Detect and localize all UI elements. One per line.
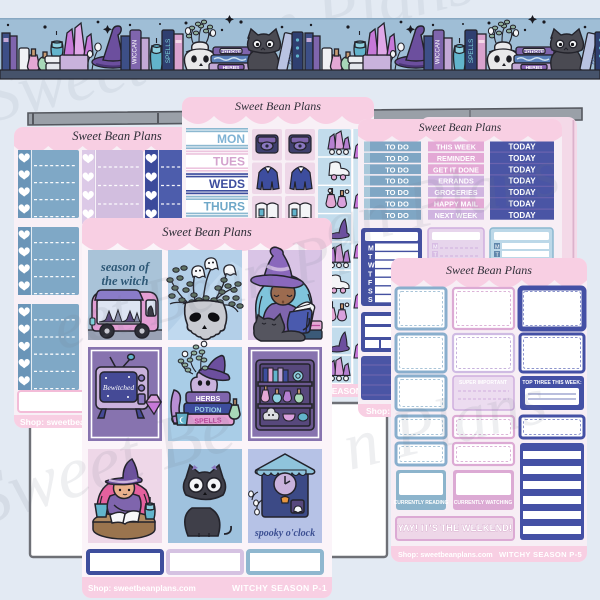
svg-text:TUES: TUES — [213, 154, 245, 168]
svg-text:Sweet Bean Plans: Sweet Bean Plans — [419, 122, 502, 134]
svg-text:Shop: sweetbeanplans.com: Shop: sweetbeanplans.com — [88, 584, 196, 593]
svg-text:Shop: sweetbeanplans.com: Shop: sweetbeanplans.com — [398, 550, 493, 559]
svg-text:Sweet Bean Plans: Sweet Bean Plans — [72, 129, 162, 143]
svg-text:Sweet Bean Plans: Sweet Bean Plans — [446, 263, 532, 277]
svg-text:Bewitched: Bewitched — [103, 383, 134, 392]
svg-text:M: M — [495, 245, 500, 251]
svg-text:W: W — [368, 263, 375, 270]
svg-text:THURS: THURS — [204, 200, 245, 214]
svg-text:spooky o'clock: spooky o'clock — [254, 528, 315, 539]
svg-text:WITCHY SEASON P-1: WITCHY SEASON P-1 — [232, 583, 327, 593]
svg-text:CURRENTLY WATCHING: CURRENTLY WATCHING — [454, 500, 513, 506]
svg-text:POTIONS: POTIONS — [221, 49, 242, 54]
svg-text:WEDS: WEDS — [209, 177, 245, 191]
svg-text:WITCHY SEASON P-5: WITCHY SEASON P-5 — [499, 550, 582, 559]
svg-text:T: T — [368, 271, 373, 278]
svg-text:F: F — [368, 280, 373, 287]
svg-text:TO DO: TO DO — [385, 143, 409, 152]
svg-text:S: S — [368, 289, 373, 296]
svg-text:CURRENTLY READING: CURRENTLY READING — [394, 500, 449, 506]
svg-text:MON: MON — [217, 132, 245, 146]
svg-text:SPELLS: SPELLS — [165, 38, 172, 63]
svg-text:WICCAN: WICCAN — [133, 40, 139, 64]
svg-text:Sweet Bean Plans: Sweet Bean Plans — [162, 225, 252, 239]
svg-text:S: S — [368, 297, 373, 304]
svg-text:YAY! IT'S THE WEEKEND!: YAY! IT'S THE WEEKEND! — [398, 523, 513, 533]
svg-text:THIS WEEK: THIS WEEK — [436, 143, 477, 152]
svg-text:TO DO: TO DO — [385, 154, 409, 163]
svg-text:Sweet Bean Plans: Sweet Bean Plans — [235, 99, 321, 113]
svg-text:M: M — [433, 245, 438, 251]
